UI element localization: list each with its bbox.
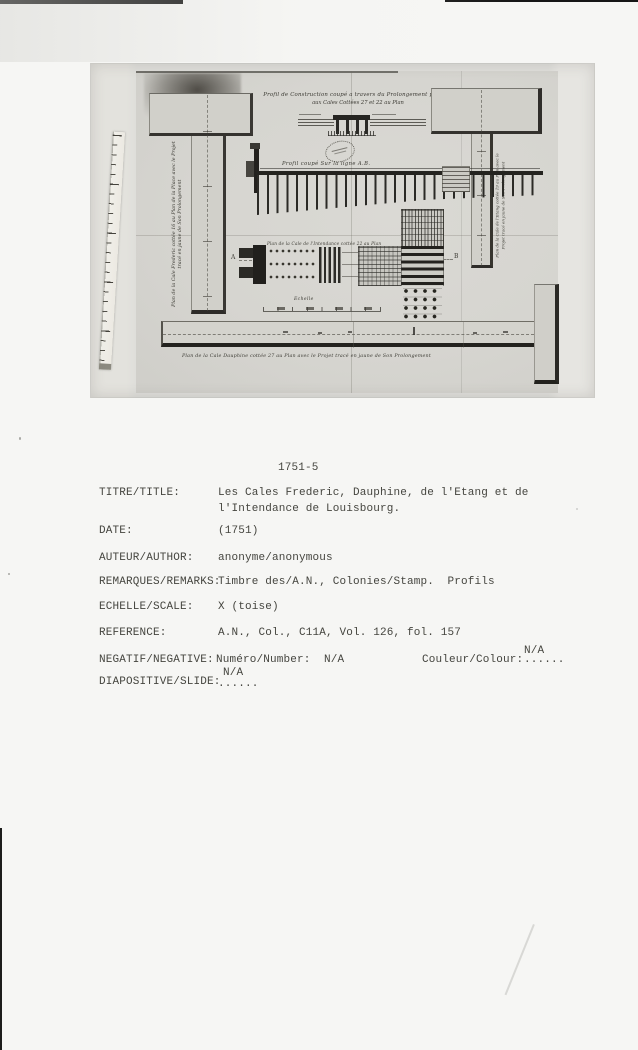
profile-legend-box [442,166,470,192]
field-value-reference: A.N., Col., C11A, Vol. 126, fol. 157 [218,627,461,639]
dauphine-mark [413,327,415,335]
point-b-label: B [454,253,458,260]
ruler-major-tick-marks [99,135,122,365]
small-section-left-caption-mark [299,114,321,115]
small-section-right-strata [370,119,426,127]
paper-speck [576,508,578,510]
frederic-cross-dash [203,186,212,187]
scanner-edge-line-bottom-left [0,828,2,1050]
field-value-scale: X (toise) [218,601,279,613]
dauphine-mark [283,331,288,333]
cale-etang-plan-bar [431,88,542,134]
field-label-reference: REFERENCE: [99,627,167,639]
cale-frederic-plan-stem [191,136,226,314]
grid-structure-beams [401,246,444,286]
scale-bar-segment [277,307,285,310]
archival-photograph: Profil de Construction coupé a travers d… [90,63,595,398]
echelle-label: Echelle [294,297,314,302]
profil-ab-label: Profil coupé Sur la ligne A.B. [282,161,370,167]
field-value-remarks: Timbre des/A.N., Colonies/Stamp. Profils [218,576,495,588]
stamp-inner-line [334,151,346,155]
dauphine-mark [473,332,477,334]
dauphine-mark [503,331,508,333]
record-number: 1751-5 [278,462,319,474]
dauphine-mark [318,332,322,334]
small-section-right-caption-mark [372,114,396,115]
cale-dauphine-plan-pier [161,321,534,347]
profile-left-cap [250,143,260,149]
intendance-quay-prong [239,267,253,278]
intendance-cross-beams [319,247,342,283]
scale-bar-segment [364,307,372,310]
paper-speck [8,573,10,575]
frederic-cross-dash [203,131,212,132]
cale-dauphine-end-block [534,284,559,384]
point-a-label: A [231,254,235,261]
cale-frederic-caption: Plan de la Cale Frederic cottée 16 au Pl… [172,137,186,311]
cale-frederic-plan-bar [149,93,253,136]
small-section-base-hatch [328,131,376,136]
page-top-shading [0,0,520,62]
field-value-author: anonyme/anonymous [218,552,333,564]
frederic-cross-dash [203,241,212,242]
point-a-leader [239,260,252,262]
dauphine-mark [348,331,352,333]
etang-cross-dash [477,151,486,152]
paper-scratch [505,924,535,995]
profile-beam [256,171,543,175]
pile-dot-grid [403,288,442,322]
scale-bar-segment [335,307,343,310]
frederic-centerline [207,95,208,311]
profile-left-block [246,161,254,177]
dauphine-fold [353,322,354,348]
field-label-title: TITRE/TITLE: [99,487,180,499]
field-label-slide: DIAPOSITIVE/SLIDE: [99,676,221,688]
field-value-negative-number: Numéro/Number: N/A [216,654,344,666]
small-section-left-strata [298,119,334,127]
cale-etang-plan-stem [471,134,493,268]
intendance-pile-dots [269,249,316,280]
dauphine-fold [463,322,464,348]
cale-dauphine-caption: Plan de la Cale Dauphine cottée 27 au Pl… [182,354,431,359]
field-label-scale: ECHELLE/SCALE: [99,601,194,613]
field-label-remarks: REMARQUES/REMARKS: [99,576,221,588]
intendance-quay-block [253,245,266,284]
paper-speck [19,437,21,440]
point-b-leader [443,259,453,261]
field-label-colour: Couleur/Colour: [422,654,523,666]
dauphine-centerline [163,334,534,335]
field-value-date: (1751) [218,525,259,537]
field-label-negative: NEGATIF/NEGATIVE: [99,654,214,666]
grid-structure-upper [401,209,444,248]
frederic-cross-dash [203,296,212,297]
field-value-title-line2: l'Intendance de Louisbourg. [218,503,400,515]
drawing-sheet: Profil de Construction coupé a travers d… [136,71,558,393]
field-value-title-line1: Les Cales Frederic, Dauphine, de l'Etang… [218,487,529,499]
scale-bar-segment [306,307,314,310]
scale-bar-line [263,311,381,312]
scanned-page: Profil de Construction coupé a travers d… [0,0,638,1050]
intendance-hatched-deck [358,246,403,286]
field-colour-na: N/A [524,645,544,657]
field-label-author: AUTEUR/AUTHOR: [99,552,194,564]
ruler-end-cap [99,363,111,370]
measuring-ruler [99,132,125,370]
cale-frederic-caption-line2: tracé en jaune de Son Prolongement [178,137,184,311]
etang-cross-dash [477,235,486,236]
profile-top-line [260,168,540,169]
field-slide-dots: ...... [218,678,259,690]
intendance-connector-lines [342,252,358,278]
field-label-date: DATE: [99,525,133,537]
intendance-quay-prong [239,248,253,258]
